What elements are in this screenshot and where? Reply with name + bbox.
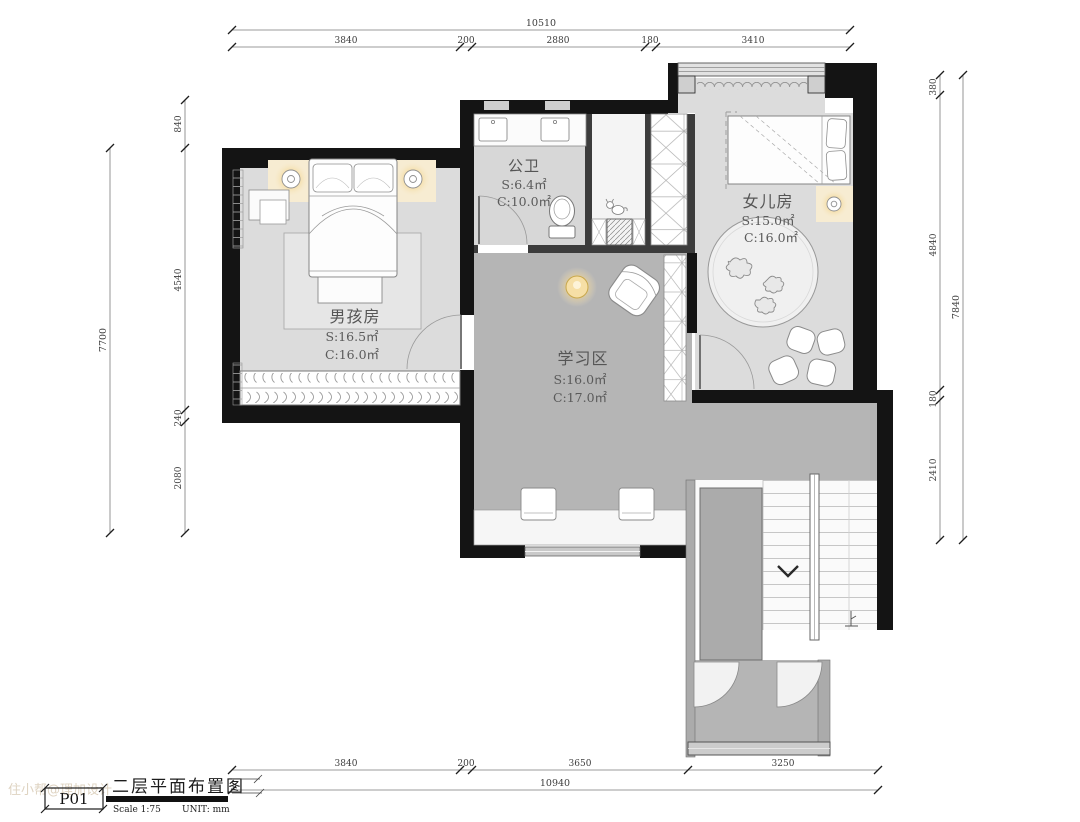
wall-bay-left (668, 63, 678, 113)
drawing-title: 二层平面布置图 (112, 777, 245, 797)
dim-right-3: 180 (929, 390, 939, 407)
sink-left (479, 118, 507, 141)
dim-left-total: 7700 (98, 328, 109, 352)
dim-left-3: 240 (174, 409, 184, 426)
dim-bottom-2: 200 (457, 759, 474, 769)
girls-room-area-c: C:16.0㎡ (744, 230, 799, 245)
study-area-name: 学习区 (557, 349, 608, 368)
boys-room-area-c: C:16.0㎡ (325, 347, 380, 362)
dim-top-3: 2880 (547, 36, 570, 46)
bay-window (678, 63, 825, 76)
bathroom-area-s: S:6.4㎡ (501, 177, 547, 192)
curtain (697, 82, 807, 90)
wardrobe-side-shelf (233, 363, 242, 405)
floor-lamp-bulb (573, 281, 581, 289)
floor-plan-page: 公卫 S:6.4㎡ C:10.0㎡ (0, 0, 1080, 822)
dim-top-4: 180 (641, 36, 658, 46)
stair-left-wall (686, 480, 695, 757)
boys-room-name: 男孩房 (329, 307, 380, 326)
girls-pillow-bottom (826, 150, 847, 180)
sink-right (541, 118, 569, 141)
study-chair-right (619, 488, 654, 520)
dim-bottom-4: 3250 (772, 759, 795, 769)
title-underline-bar (106, 796, 228, 802)
dim-right-1: 380 (929, 78, 939, 95)
dim-right-total: 7840 (951, 295, 962, 319)
dim-left-2: 4540 (174, 268, 184, 291)
partition-study-top-stub (474, 245, 478, 253)
wall-girls-bottom (692, 390, 893, 403)
dim-bottom-total: 10940 (540, 778, 570, 789)
washing-machine (607, 219, 632, 245)
toilet-bowl (550, 196, 575, 226)
wall-study-bottom-right (640, 545, 692, 558)
bed-bench (318, 277, 382, 303)
wall-study-bottom-left (460, 545, 525, 558)
partition-study-top (528, 245, 692, 253)
bathroom-area-c: C:10.0㎡ (497, 194, 552, 209)
girls-room-area-s: S:15.0㎡ (741, 213, 795, 228)
wall-girls-right (853, 95, 877, 395)
bath-highwindow-2 (545, 101, 570, 110)
dim-top-total: 10510 (526, 18, 556, 29)
dim-left-1: 840 (174, 115, 184, 132)
wall-center-upper (460, 100, 474, 315)
boys-room-area-s: S:16.5㎡ (325, 329, 379, 344)
wall-center-lower (460, 370, 474, 557)
hall-closet (651, 114, 687, 245)
study-area-c: C:17.0㎡ (553, 390, 608, 405)
bathroom-name: 公卫 (508, 157, 540, 175)
toilet-tank (549, 226, 575, 238)
stair-treads (763, 480, 877, 630)
dim-right-2: 4840 (929, 233, 939, 256)
dim-right-4: 2410 (929, 458, 939, 481)
table-lamp-left-icon (282, 170, 300, 188)
hall-floor (692, 403, 877, 480)
boys-desk-chair (260, 200, 286, 224)
study-desk (474, 510, 692, 545)
dim-top-2: 200 (457, 36, 474, 46)
partition-closet-girls (687, 114, 695, 253)
bookshelf (664, 255, 686, 401)
dim-left-4: 2080 (174, 466, 184, 489)
girls-pillow-top (826, 118, 847, 148)
dim-top-1: 3840 (335, 36, 358, 46)
study-area-s: S:16.0㎡ (553, 372, 607, 387)
bay-column-right (808, 76, 825, 93)
radiator (233, 170, 243, 248)
girls-table-lamp-icon (827, 197, 841, 211)
dim-bottom-1: 3840 (335, 759, 358, 769)
wall-boys-bottom (222, 405, 474, 423)
bay-column-left (678, 76, 695, 93)
study-chair-left (521, 488, 556, 520)
table-lamp-right-icon (404, 170, 422, 188)
wall-stair-right (877, 390, 893, 630)
wall-girls-left (687, 253, 697, 333)
scale-label: Scale 1:75 (113, 805, 161, 815)
unit-label: UNIT: mm (182, 805, 230, 815)
page-code: P01 (59, 790, 88, 808)
partition-corridor-closet (645, 114, 651, 245)
dim-top-5: 3410 (742, 36, 765, 46)
wall-topright-corner (825, 63, 877, 98)
title-block: 住小帮@理加设计 P01 二层平面布置图 Scale 1:75 UNIT: mm (8, 775, 264, 815)
floor-plan-drawing: 公卫 S:6.4㎡ C:10.0㎡ (0, 0, 1080, 822)
girls-room-name: 女儿房 (742, 192, 793, 211)
stair-void-block (700, 488, 762, 660)
bath-highwindow-1 (484, 101, 509, 110)
dim-bottom-3: 3650 (569, 759, 592, 769)
